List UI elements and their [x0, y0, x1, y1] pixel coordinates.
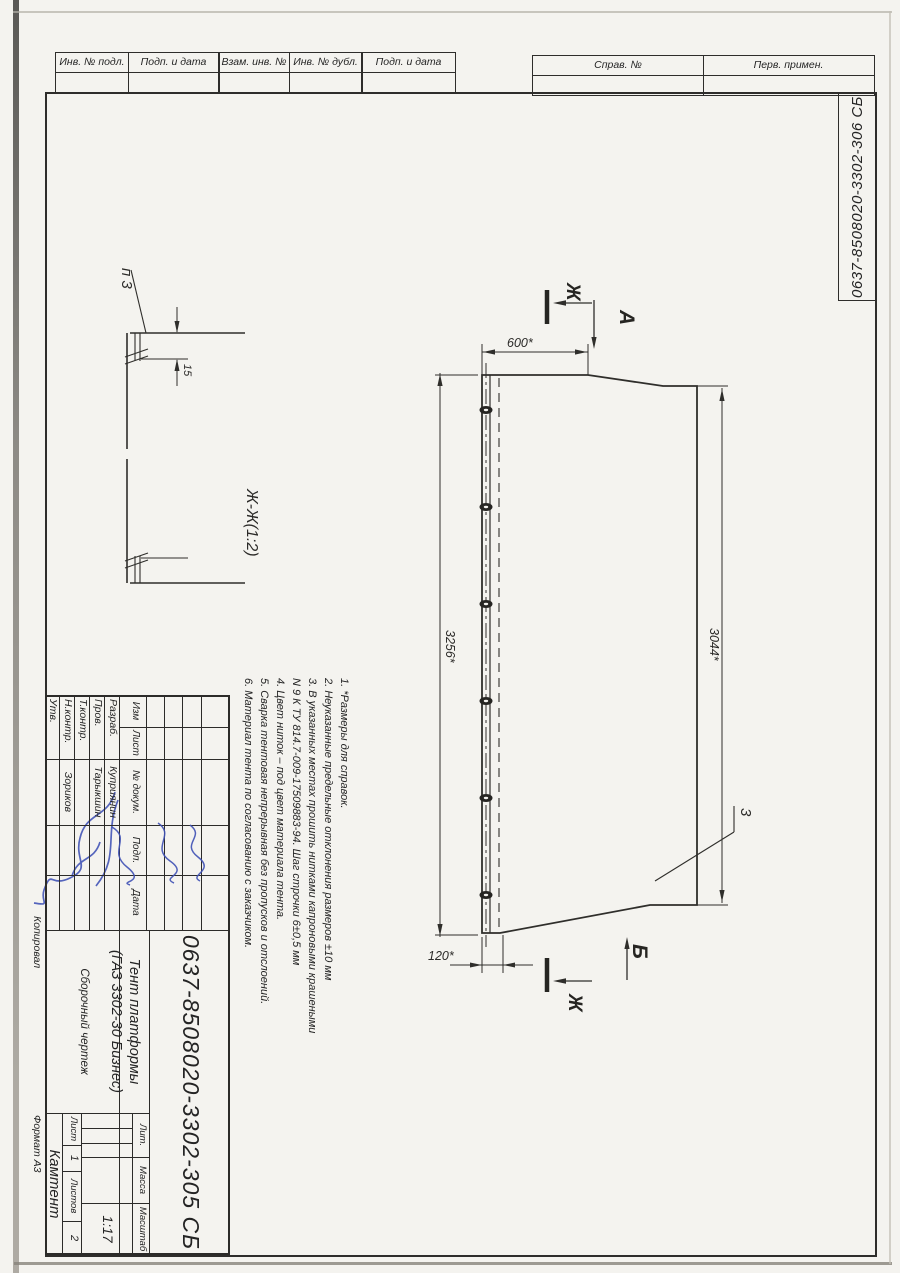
- doc-type: Сборочный чертеж: [78, 930, 90, 1113]
- section-marker-top: Ж: [547, 282, 592, 324]
- col-izm: Изм: [130, 695, 141, 727]
- signatures-ink: [95, 817, 210, 889]
- row-label-tkontr: Т.контр.: [77, 699, 89, 757]
- row-name-razrab: Куприянин: [107, 759, 119, 825]
- title-block-doc-number: 0637-8508020-3302-305 СБ: [177, 930, 204, 1255]
- detail-view-linework: [125, 270, 245, 583]
- dimension-lines: [435, 344, 728, 973]
- product-title-1: Тент платформы: [126, 930, 142, 1113]
- lit-label: Лит.: [137, 1113, 148, 1157]
- row-label-nkontr: Н.контр.: [62, 699, 74, 757]
- row-label-razrab: Разраб.: [107, 699, 119, 757]
- section-letter-bottom: Ж: [564, 993, 585, 1013]
- tent-outline: [482, 363, 697, 947]
- scale-label: Масштаб: [137, 1203, 148, 1255]
- row-name-prov: Тарыкшин: [92, 759, 104, 825]
- view-arrow-a: А: [591, 300, 638, 349]
- dim-3044: 3044*: [707, 628, 721, 662]
- drawing-sheet: Инв. № подл. Подп. и дата Взам. инв. № И…: [0, 0, 900, 1273]
- product-title-2: (ГАЗ 3302-30 Бизнес): [108, 930, 124, 1113]
- view-arrow-b: Б: [624, 937, 651, 980]
- title-block-border: Изм Лист № докум. Подп. Дата Разраб. Куп…: [45, 695, 230, 1255]
- view-letter-b: Б: [628, 944, 651, 959]
- section-marker-bottom: Ж: [547, 958, 592, 1013]
- col-doc: № докум.: [130, 759, 141, 825]
- col-list: Лист: [130, 727, 141, 759]
- dimension-arrowheads: [437, 349, 724, 967]
- detail-view-title: Ж-Ж(1:2): [243, 488, 260, 557]
- sheet-number: 1: [68, 1145, 80, 1171]
- sheets-number: 2: [68, 1221, 80, 1255]
- row-label-prov: Пров.: [92, 699, 104, 757]
- position-callout-3: 3: [655, 806, 754, 881]
- dim-120: 120*: [428, 949, 455, 963]
- row-label-utv: Утв.: [47, 699, 59, 757]
- dim-3256: 3256*: [443, 630, 457, 664]
- view-letter-a: А: [615, 309, 638, 325]
- sheet-label: Лист: [68, 1113, 79, 1145]
- title-block: Изм Лист № докум. Подп. Дата Разраб. Куп…: [45, 695, 230, 1255]
- scale-value: 1:17: [100, 1203, 116, 1255]
- row-name-nkontr: Зориков: [62, 759, 74, 825]
- section-letter-top: Ж: [562, 282, 583, 302]
- dim-600: 600*: [507, 336, 534, 350]
- detail-arrowheads: [175, 321, 180, 371]
- sheets-label: Листов: [68, 1171, 79, 1221]
- detail-callout-p3: п 3: [118, 268, 135, 289]
- detail-dim-15: 15: [181, 364, 193, 377]
- svg-text:3: 3: [737, 808, 754, 817]
- company-name: Камтент: [46, 1113, 63, 1255]
- mass-label: Масса: [137, 1157, 148, 1203]
